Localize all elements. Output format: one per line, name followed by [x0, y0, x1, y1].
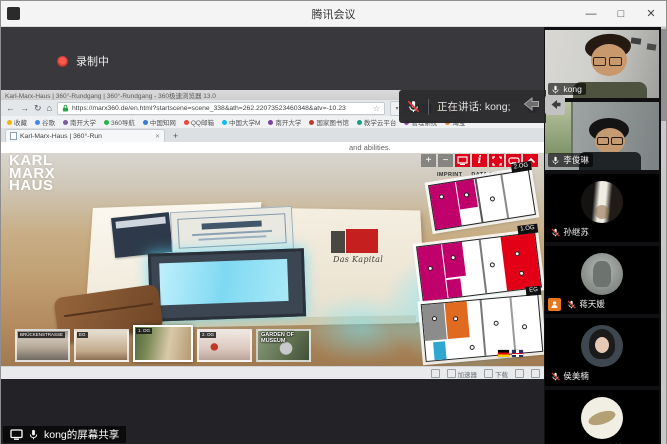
floor-label: 2.OG — [510, 161, 532, 173]
app-icon — [7, 7, 20, 20]
book-illustration-red — [346, 229, 378, 253]
annotation-arrows — [521, 95, 565, 115]
imprint-link[interactable]: IMPRINT — [437, 172, 462, 178]
participant-tile-5[interactable]: 侯美楠 — [545, 318, 659, 386]
meeting-window: 腾讯会议 — □ ✕ 录制中 Karl-Marx-Haus | 360°-Run… — [0, 0, 667, 444]
mic-muted-icon — [551, 372, 560, 381]
bookmark-item[interactable]: 国家图书馆 — [309, 117, 349, 127]
zoom-out-button[interactable]: − — [438, 154, 453, 167]
status-icon[interactable] — [431, 369, 440, 378]
zoom-in-button[interactable]: + — [421, 154, 436, 167]
bookmark-favicon — [143, 120, 148, 125]
tab-title: Karl-Marx-Haus | 360°-Run — [20, 133, 152, 140]
status-icon[interactable] — [515, 369, 524, 378]
participants-panel: kong 李俊琳 — [544, 27, 666, 444]
refresh-icon[interactable]: ↻ — [34, 104, 42, 113]
arrow-left-icon[interactable] — [521, 95, 541, 113]
bookmark-favicon — [7, 120, 12, 125]
new-tab-button[interactable]: + — [168, 130, 183, 142]
exhibit-document-dark[interactable] — [111, 212, 173, 258]
bookmark-item[interactable]: 360导航 — [104, 117, 135, 127]
mic-muted-icon — [407, 100, 420, 113]
scene-thumbnails: BRÜCKENSTRASSE EG 1. OG 2. OG GARDEN OF — [15, 325, 311, 362]
bookmark-item[interactable]: QQ邮箱 — [184, 117, 214, 127]
bookmark-item[interactable]: 谷歌 — [35, 117, 55, 127]
screen-icon — [457, 156, 468, 165]
mic-muted-icon — [551, 228, 560, 237]
browser-tab[interactable]: Karl-Marx-Haus | 360°-Run ✕ — [5, 129, 165, 142]
thumbnail-label: 2. OG — [200, 332, 216, 338]
role-badge-icon — [548, 298, 561, 311]
screen-button[interactable] — [455, 154, 470, 167]
avatar — [581, 325, 623, 367]
name-badge: kong — [548, 83, 585, 95]
bookmark-favicon — [268, 120, 273, 125]
thumbnail-garden[interactable]: GARDEN OF MUSEUM — [256, 329, 311, 362]
download-icon — [484, 369, 493, 378]
fullscreen-button[interactable] — [489, 154, 504, 167]
name-badge: 孙继苏 — [548, 225, 593, 239]
page-top-text-strip: and abilities. — [1, 142, 546, 153]
name-badge: 侯美楠 — [548, 369, 593, 383]
bookmark-favicon — [309, 120, 314, 125]
participant-tile-4[interactable]: 蒋天媛 — [545, 246, 659, 314]
status-downloads[interactable]: 下载 — [484, 369, 508, 379]
mic-muted-icon — [567, 300, 576, 309]
karl-marx-haus-logo: KARL MARX HAUS — [9, 155, 55, 193]
map-highlight-glow — [301, 293, 421, 363]
bookmark-star-icon[interactable]: ☆ — [373, 104, 380, 113]
speaking-label: 正在讲话: kong; — [437, 99, 511, 114]
fullscreen-icon — [492, 156, 502, 166]
participant-name: kong — [563, 84, 581, 94]
bookmark-item[interactable]: 收藏 — [7, 117, 27, 127]
name-badge: 李俊琳 — [548, 153, 593, 167]
recording-label: 录制中 — [76, 53, 109, 69]
shared-browser-window[interactable]: Karl-Marx-Haus | 360°-Rundgang | 360°-Ru… — [1, 90, 546, 379]
english-flag-icon[interactable] — [512, 350, 523, 357]
participant-tile-kong[interactable]: kong — [545, 30, 659, 98]
home-icon[interactable]: ⌂ — [47, 104, 52, 113]
status-icon[interactable] — [531, 369, 540, 378]
participant-name: 蒋天媛 — [579, 298, 605, 310]
bookmark-item[interactable]: 中国大学M — [222, 117, 260, 127]
screen-share-badge: kong的屏幕共享 — [3, 426, 126, 443]
scrollbar-thumb[interactable] — [661, 29, 666, 121]
avatar — [581, 181, 623, 223]
thumbnail-eg[interactable]: EG — [74, 329, 129, 362]
info-button[interactable]: i — [472, 154, 487, 167]
mic-icon — [551, 85, 560, 94]
share-label: kong的屏幕共享 — [44, 427, 119, 442]
book-title-text: Das Kapital — [333, 255, 383, 264]
page-favicon — [10, 132, 17, 140]
tab-close-icon[interactable]: ✕ — [155, 133, 160, 140]
bookmark-favicon — [104, 120, 109, 125]
status-accelerator[interactable]: 加速器 — [447, 369, 478, 379]
mic-icon — [28, 429, 39, 440]
bookmark-favicon — [222, 120, 227, 125]
name-badge: 蒋天媛 — [564, 297, 609, 311]
bookmark-favicon — [35, 120, 40, 125]
thumbnail-label: BRÜCKENSTRASSE — [18, 332, 65, 338]
undo-arrow-icon — [549, 99, 562, 111]
shared-screen-stage: 录制中 Karl-Marx-Haus | 360°-Rundgang | 360… — [1, 27, 544, 444]
floor-label: 1.OG — [517, 224, 538, 235]
maximize-button[interactable]: □ — [606, 1, 636, 26]
tab-bar: Karl-Marx-Haus | 360°-Run ✕ + — [1, 128, 546, 142]
floorplan-2og[interactable]: 2.OG — [428, 169, 536, 230]
participant-name: 李俊琳 — [563, 154, 589, 166]
tour-viewport[interactable]: Das Kapital KARL MARX HAUS + − i — [1, 153, 546, 366]
participant-name: 侯美楠 — [563, 370, 589, 382]
floorplan-eg[interactable]: EG — [421, 294, 544, 362]
exhibit-frame-highlighted[interactable] — [148, 248, 306, 321]
participant-name: 孙继苏 — [563, 226, 589, 238]
stage-top-band: 录制中 — [1, 27, 544, 90]
bookmark-item[interactable]: 南开大学 — [268, 117, 301, 127]
accelerator-icon — [447, 369, 456, 378]
floor-label: EG — [526, 286, 541, 296]
avatar — [581, 397, 623, 439]
bookmark-item[interactable]: 南开大学 — [63, 117, 96, 127]
thumbnail-label: EG — [77, 332, 88, 338]
page-top-text: and abilities. — [349, 143, 391, 152]
bookmark-favicon — [184, 120, 189, 125]
divider — [428, 99, 429, 115]
back-icon[interactable]: ← — [6, 104, 15, 113]
thumbnail-2og[interactable]: 2. OG — [197, 329, 252, 362]
bookmark-favicon — [357, 120, 362, 125]
https-lock-icon — [62, 104, 69, 112]
participant-tile-6[interactable]: 191820054张楠 — [545, 390, 659, 444]
recording-indicator: 录制中 — [57, 53, 109, 69]
book-illustration-dark — [331, 231, 345, 253]
bookmark-item[interactable]: 教学云平台 — [357, 117, 397, 127]
thumbnail-label: GARDEN OF MUSEUM — [259, 332, 309, 344]
undo-arrow-button[interactable] — [545, 95, 565, 115]
close-button[interactable]: ✕ — [636, 1, 666, 26]
language-switcher — [498, 350, 523, 357]
thumbnail-label: 1. OG — [136, 328, 152, 334]
avatar — [581, 253, 623, 295]
record-dot-icon — [57, 56, 68, 67]
forward-icon[interactable]: → — [20, 104, 29, 113]
thumbnail-exterior[interactable]: BRÜCKENSTRASSE — [15, 329, 70, 362]
german-flag-icon[interactable] — [498, 350, 509, 357]
participants-scrollbar[interactable] — [661, 27, 666, 444]
bookmark-item[interactable]: 中国知网 — [143, 117, 176, 127]
screen-share-icon — [10, 429, 23, 440]
url-text[interactable]: https://marx360.de/en.html?startscene=sc… — [72, 105, 370, 112]
thumbnail-1og-selected[interactable]: 1. OG — [133, 325, 193, 362]
mic-icon — [551, 156, 560, 165]
minimize-button[interactable]: — — [576, 1, 606, 26]
browser-status-bar: 加速器 下载 — [1, 366, 546, 379]
participant-tile-3[interactable]: 孙继苏 — [545, 174, 659, 242]
window-title: 腾讯会议 — [1, 6, 666, 22]
address-bar[interactable]: https://marx360.de/en.html?startscene=sc… — [57, 102, 385, 115]
bookmark-favicon — [63, 120, 68, 125]
title-bar: 腾讯会议 — □ ✕ — [1, 1, 666, 27]
